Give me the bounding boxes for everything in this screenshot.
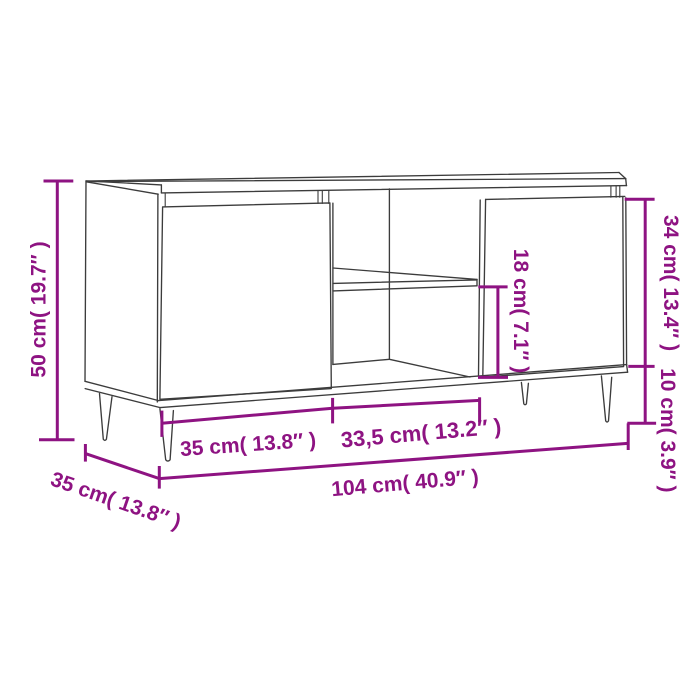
svg-text:18 cm( 7.1″ ): 18 cm( 7.1″ ) (509, 249, 532, 373)
svg-text:35 cm( 13.8″ ): 35 cm( 13.8″ ) (179, 429, 316, 461)
svg-text:33,5 cm( 13.2″ ): 33,5 cm( 13.2″ ) (340, 414, 503, 453)
svg-text:104 cm( 40.9″ ): 104 cm( 40.9″ ) (330, 465, 479, 501)
svg-text:34 cm( 13.4″ ): 34 cm( 13.4″ ) (659, 215, 682, 351)
svg-text:50 cm( 19.7″ ): 50 cm( 19.7″ ) (27, 241, 50, 377)
svg-text:10 cm( 3.9″ ): 10 cm( 3.9″ ) (656, 368, 679, 492)
